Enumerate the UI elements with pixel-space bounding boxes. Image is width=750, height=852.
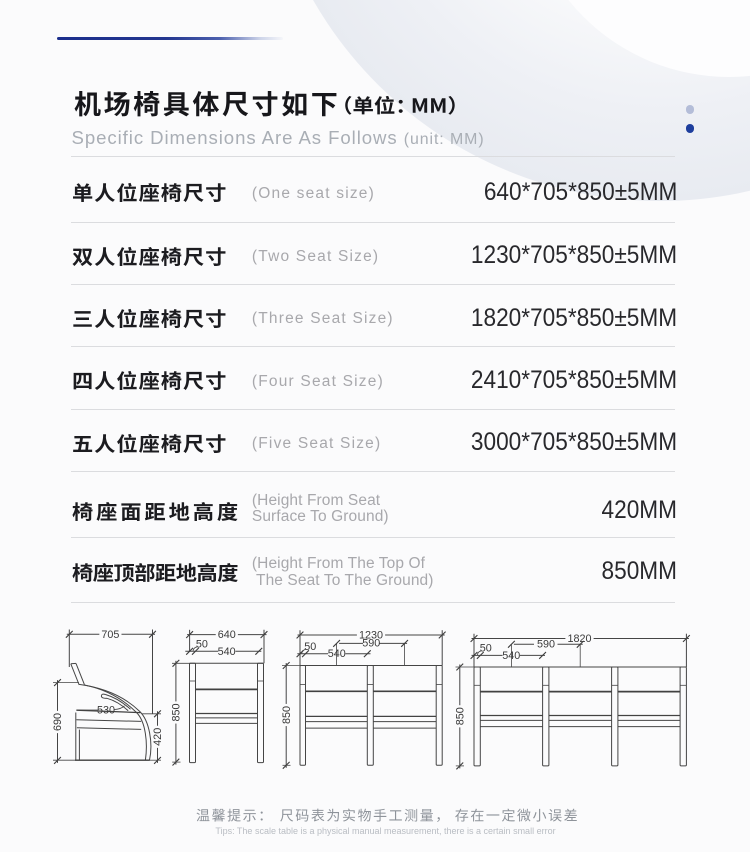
- svg-text:640: 640: [218, 629, 236, 641]
- svg-text:540: 540: [218, 646, 236, 658]
- svg-text:50: 50: [480, 643, 492, 655]
- svg-text:530: 530: [97, 704, 115, 716]
- svg-text:590: 590: [537, 639, 555, 651]
- svg-text:540: 540: [328, 648, 346, 660]
- svg-text:705: 705: [101, 629, 119, 641]
- svg-text:1820: 1820: [567, 633, 591, 645]
- svg-text:420: 420: [152, 728, 164, 746]
- svg-text:50: 50: [196, 639, 208, 651]
- svg-text:850: 850: [281, 706, 293, 724]
- svg-text:690: 690: [52, 713, 64, 731]
- svg-text:850: 850: [454, 707, 466, 725]
- svg-text:590: 590: [362, 638, 380, 650]
- svg-text:50: 50: [304, 641, 316, 653]
- svg-text:850: 850: [171, 703, 183, 721]
- svg-text:540: 540: [502, 650, 520, 662]
